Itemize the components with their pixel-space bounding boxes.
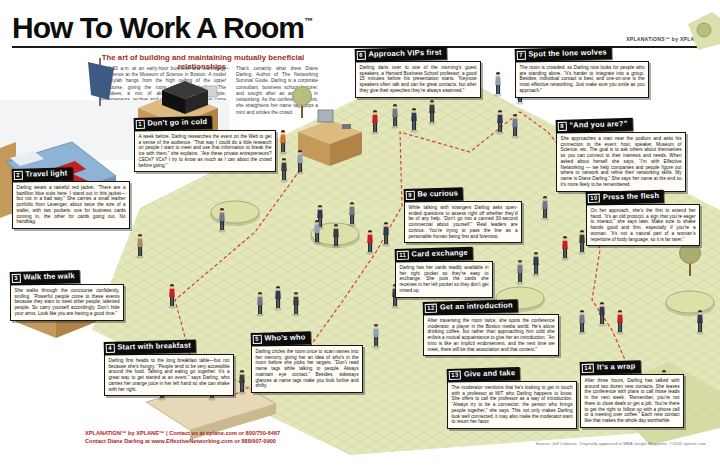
- section-title: Spot the lone wolves: [528, 47, 607, 58]
- section-number: 10: [588, 194, 600, 203]
- section-spot-the-lone-wolves: 7Spot the lone wolves The room is crowde…: [515, 43, 649, 98]
- footer-line-1: XPLANATION™ by XPLANE™ | Contact us at x…: [85, 430, 280, 438]
- section-number: 4: [106, 344, 115, 353]
- section-header: 11Card exchange: [395, 247, 473, 262]
- section-body: The room is crowded, so Darling now look…: [515, 61, 649, 98]
- section-title: Who’s who: [264, 332, 305, 342]
- section-number: 2: [14, 171, 23, 180]
- section-header: 14It’s a wrap: [580, 360, 641, 375]
- section-card-exchange: 11Card exchange Darling has her cards re…: [395, 243, 493, 298]
- section-body: After traversing the room twice, she spo…: [423, 314, 559, 356]
- section-body: Darling first heads to the long breakfas…: [104, 354, 234, 396]
- section-number: 8: [558, 122, 567, 131]
- section-header: 3Walk the walk: [10, 270, 80, 285]
- section-number: 14: [582, 364, 594, 373]
- section-header: 12Get an introduction: [423, 299, 518, 315]
- section-title: Start with breakfast: [117, 341, 191, 352]
- section-body: Darling has her cards readily available …: [395, 261, 493, 298]
- section-body: She approaches a man near the podium and…: [556, 132, 686, 192]
- section-walk-the-walk: 3Walk the walk She walks through the con…: [10, 266, 124, 321]
- footer-contact: XPLANATION™ by XPLANE™ | Contact us at x…: [85, 430, 280, 445]
- section-its-a-wrap: 14It’s a wrap After three hours, Darling…: [580, 356, 684, 428]
- footer-line-2: Contact Diane Darling at www.EffectiveNe…: [85, 438, 280, 446]
- section-start-with-breakfast: 4Start with breakfast Darling first head…: [104, 336, 234, 396]
- section-title: Get an introduction: [440, 300, 513, 311]
- section-title: Give and take: [464, 368, 516, 378]
- section-number: 6: [357, 51, 366, 60]
- section-body: A week before, Darling researches the ev…: [134, 130, 276, 172]
- section-header: 8“And you are?”: [556, 118, 633, 133]
- section-header: 5Who’s who: [251, 331, 311, 346]
- section-number: 13: [449, 371, 461, 380]
- section-travel-light: 2Travel light Darling wears a tasteful r…: [12, 163, 130, 229]
- section-get-an-introduction: 12Get an introduction After traversing t…: [423, 296, 559, 356]
- section-title: Travel light: [25, 168, 67, 178]
- section-body: After three hours, Darling has talked wi…: [580, 374, 684, 428]
- section-title: “And you are?”: [569, 119, 627, 130]
- section-number: 11: [397, 251, 409, 260]
- section-give-and-take: 13Give and take The moderator mentions t…: [447, 363, 577, 429]
- section-and-you-are: 8“And you are?” She approaches a man nea…: [556, 114, 686, 192]
- section-header: 9Be curious: [404, 187, 464, 202]
- curtain: [88, 62, 114, 100]
- section-header: 7Spot the lone wolves: [515, 46, 612, 62]
- section-number: 9: [406, 191, 415, 200]
- section-number: 3: [12, 274, 21, 283]
- infographic-poster: How To Work A Room™ XPLANATiONS™ by XPLA…: [0, 0, 720, 465]
- section-number: 1: [136, 120, 145, 129]
- section-body: Darling darts over to one of the morning…: [355, 61, 481, 98]
- section-title: Approach VIPs first: [368, 48, 442, 59]
- section-title: Press the flesh: [603, 191, 660, 202]
- section-whos-who: 5Who’s who Darling circles the room once…: [251, 327, 363, 393]
- section-approach-vips-first: 6Approach VIPs first Darling darts over …: [355, 43, 481, 98]
- section-header: 6Approach VIPs first: [355, 46, 447, 62]
- section-header: 2Travel light: [12, 167, 73, 182]
- section-be-curious: 9Be curious While talking with strangers…: [404, 183, 522, 243]
- section-header: 4Start with breakfast: [104, 339, 196, 355]
- section-title: Card exchange: [411, 248, 468, 259]
- section-body: She walks through the concourse confiden…: [10, 284, 124, 321]
- section-body: While talking with strangers Darling ask…: [404, 201, 522, 243]
- section-body: The moderator mentions that he’s looking…: [447, 381, 577, 429]
- section-press-the-flesh: 10Press the flesh On her approach, she’s…: [586, 186, 700, 246]
- section-body: Darling circles the room once to scan na…: [251, 345, 363, 393]
- section-header: 13Give and take: [447, 367, 521, 382]
- source-credit: Source: Jeff Osborne. Originally appeare…: [500, 441, 706, 446]
- section-header: 1Don’t go in cold: [134, 116, 213, 131]
- section-number: 12: [425, 304, 437, 313]
- section-number: 7: [517, 51, 526, 60]
- section-title: Walk the walk: [23, 271, 75, 281]
- section-body: On her approach, she’s the first to exte…: [586, 204, 700, 246]
- section-title: It’s a wrap: [597, 361, 636, 371]
- section-title: Don’t go in cold: [147, 117, 207, 128]
- section-header: 10Press the flesh: [586, 190, 665, 205]
- section-body: Darling wears a tasteful red jacket. “Th…: [12, 181, 130, 229]
- section-number: 5: [253, 335, 262, 344]
- section-title: Be curious: [417, 188, 458, 198]
- section-dont-go-in-cold: 1Don’t go in cold A week before, Darling…: [134, 112, 276, 172]
